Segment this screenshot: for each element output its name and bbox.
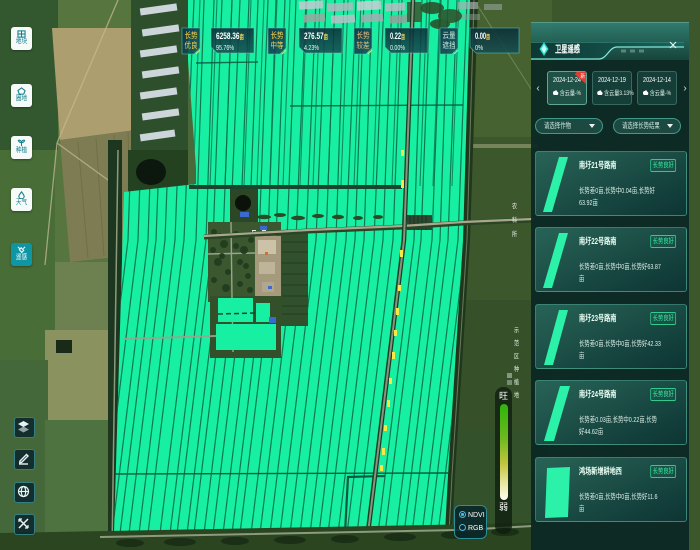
svg-text:长势: 长势 <box>185 30 198 40</box>
svg-text:卫星遥感: 卫星遥感 <box>555 44 580 56</box>
svg-text:云量: 云量 <box>443 31 456 40</box>
svg-text:95.76%: 95.76% <box>216 43 234 52</box>
svg-text:科: 科 <box>512 215 517 224</box>
svg-text:种: 种 <box>514 364 519 373</box>
svg-text:范: 范 <box>514 338 519 347</box>
svg-text:较差: 较差 <box>357 40 370 50</box>
svg-text:中等: 中等 <box>271 40 284 50</box>
svg-text:长势: 长势 <box>271 30 284 40</box>
svg-text:0.00%: 0.00% <box>390 43 405 52</box>
svg-text:0%: 0% <box>475 43 483 52</box>
svg-text:示: 示 <box>514 326 519 334</box>
svg-text:区: 区 <box>514 352 519 360</box>
svg-text:植: 植 <box>514 377 519 386</box>
svg-text:长势: 长势 <box>357 30 370 40</box>
svg-text:4.23%: 4.23% <box>304 43 319 52</box>
svg-text:地: 地 <box>514 390 519 399</box>
svg-text:遮挡: 遮挡 <box>443 40 456 50</box>
svg-text:所: 所 <box>512 229 517 238</box>
svg-text:农: 农 <box>512 201 517 210</box>
svg-text:优良: 优良 <box>185 40 198 50</box>
